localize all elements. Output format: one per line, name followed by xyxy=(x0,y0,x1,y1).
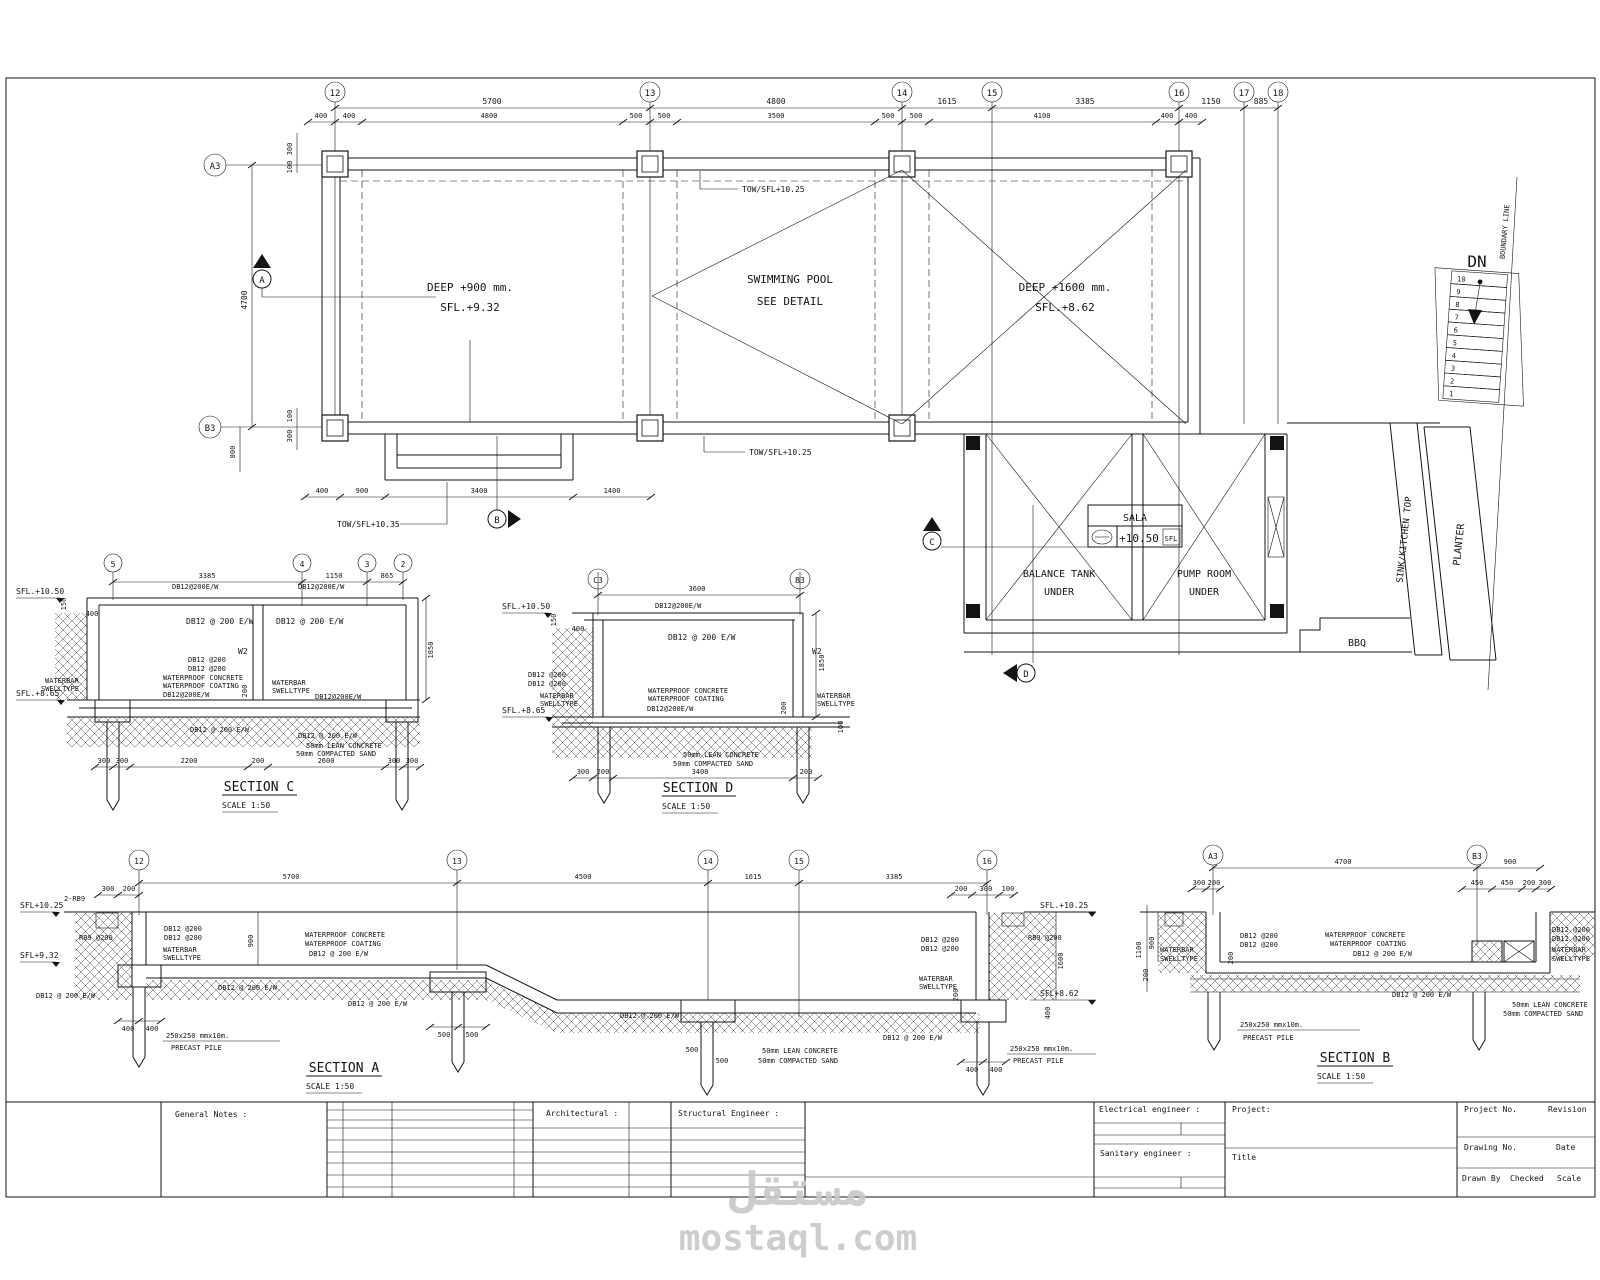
dim-label: 150 xyxy=(60,598,68,611)
dim-label: 4700 xyxy=(240,290,249,309)
marker-b: B xyxy=(494,516,499,526)
tb-project: Project: xyxy=(1232,1105,1271,1114)
material-label: WATERPROOF COATING xyxy=(305,940,381,948)
rebar-label: DB12 @ 200 E/W xyxy=(218,984,278,992)
seca-sfl-3: SFL.+10.25 xyxy=(1040,901,1088,910)
tb-revision: Revision xyxy=(1548,1105,1587,1114)
pool-title: SWIMMING POOL xyxy=(747,273,833,286)
dim-label: 3400 xyxy=(692,768,709,776)
secd-grid: C3 xyxy=(593,576,603,585)
dim-label: 200 xyxy=(952,989,960,1002)
dim-label: 900 xyxy=(356,487,369,495)
grid-bubble-17: 17 xyxy=(1239,89,1250,99)
plan-left-dims: 4700 300 100 100 300 800 xyxy=(229,133,297,472)
material-label: SWELLTYPE xyxy=(817,700,855,708)
rebar-label: DB12@200E/W xyxy=(647,705,694,713)
material-label: WATERBAR xyxy=(817,692,852,700)
dim-label: 1850 xyxy=(818,655,826,672)
secc-title: SECTION C xyxy=(224,780,294,795)
dim-label: 400 xyxy=(315,112,328,120)
section-a: 12 13 14 15 16 5700 4500 1615 3385 300 2… xyxy=(20,850,1096,1095)
material-label: WATERPROOF CONCRETE xyxy=(163,674,243,682)
dim-label: 2600 xyxy=(318,757,335,765)
sink-kitchen-label: SINK/KITCHEN TOP xyxy=(1396,496,1415,584)
seca-grid: 16 xyxy=(982,857,992,866)
tank-area: SALA +10.50 SFL BALANCE TANK UNDER PUMP … xyxy=(964,434,1412,652)
material-label: SWELLTYPE xyxy=(272,687,310,695)
dim-label: 200 xyxy=(1208,879,1221,887)
plan-dim-rows: 5700 4800 1615 3385 1150 885 400 400 480… xyxy=(304,97,1282,125)
dim-label: 200 xyxy=(597,768,610,776)
secd-title: SECTION D xyxy=(663,781,734,796)
material-label: WATERPROOF COATING xyxy=(163,682,239,690)
tb-date: Date xyxy=(1556,1143,1575,1152)
seca-grid: 14 xyxy=(703,857,713,866)
dim-label: 500 xyxy=(630,112,643,120)
pool-step-detail xyxy=(385,434,573,480)
grid-bubble-18: 18 xyxy=(1273,89,1284,99)
material-label: SWELLTYPE xyxy=(540,700,578,708)
dim-label: 5700 xyxy=(283,873,300,881)
rebar-label: DB12 @200 xyxy=(1552,926,1590,934)
plan-bottom-dims: 400 900 3400 1400 xyxy=(301,487,655,500)
dim-label: 200 xyxy=(1142,969,1150,982)
pile-label: PRECAST PILE xyxy=(171,1044,222,1052)
dim-label: 200 xyxy=(252,757,265,765)
pile-label: 250x250 mmx10m. xyxy=(1240,1021,1303,1029)
secb-scale: SCALE 1:50 xyxy=(1317,1072,1365,1081)
dim-label: 3500 xyxy=(768,112,785,120)
rebar-label: 2-RB9 xyxy=(64,895,85,903)
dim-label: 450 xyxy=(1501,879,1514,887)
pile-label: 250x250 mmx10m. xyxy=(1010,1045,1073,1053)
cad-canvas: 12 13 14 15 16 17 18 A3 B3 5700 4800 161… xyxy=(0,0,1600,1280)
dim-label: 900 xyxy=(1148,937,1156,950)
dim-label: 500 xyxy=(686,1046,699,1054)
dim-label: 400 xyxy=(343,112,356,120)
tb-drawn-by: Drawn By xyxy=(1462,1174,1501,1183)
stair-step: 8 xyxy=(1455,301,1460,309)
marker-d: D xyxy=(1023,670,1028,680)
rebar-label: DB12 @ 200 E/W xyxy=(186,617,254,626)
dim-label: 300 xyxy=(577,768,590,776)
stair-step: 3 xyxy=(1451,365,1456,373)
tb-drawing-no: Drawing No. xyxy=(1464,1143,1517,1152)
material-label: SWELLTYPE xyxy=(1160,955,1198,963)
rebar-label: DB12 @200 xyxy=(1240,941,1278,949)
dim-label: 4500 xyxy=(575,873,592,881)
dim-label: 4800 xyxy=(481,112,498,120)
sala-sfl: SFL xyxy=(1165,535,1178,543)
rebar-label: DB12 @ 200 E/W xyxy=(668,633,736,642)
material-label: WATERBAR xyxy=(1160,946,1195,954)
watermark: مستقل mostaql.com xyxy=(679,1162,917,1259)
dim-label: 1100 xyxy=(1135,942,1143,959)
plan-grid-bubbles: 12 13 14 15 16 17 18 A3 B3 xyxy=(199,82,1288,438)
material-label: SWELLTYPE xyxy=(1552,955,1590,963)
wall-label: W2 xyxy=(238,647,248,656)
tb-project-no: Project No. xyxy=(1464,1105,1517,1114)
dim-label: 3385 xyxy=(886,873,903,881)
grid-bubble-a3: A3 xyxy=(210,162,221,172)
dim-label: 100 xyxy=(837,721,845,734)
rebar-label: DB12 @200 xyxy=(921,945,959,953)
rebar-label: DB12 @ 200 E/W xyxy=(276,617,344,626)
material-label: 50mm LEAN CONCRETE xyxy=(762,1047,838,1055)
pool-sfl-1: SFL.+9.32 xyxy=(440,301,500,314)
seca-grid: 15 xyxy=(794,857,804,866)
material-label: WATERPROOF CONCRETE xyxy=(305,931,385,939)
boundary-line-label: BOUNDARY LINE xyxy=(1499,204,1512,259)
dim-label: 300 xyxy=(980,885,993,893)
rebar-label: DB12 @ 200 E/W xyxy=(348,1000,408,1008)
pool-see-detail: SEE DETAIL xyxy=(757,295,824,308)
dim-label: 400 xyxy=(990,1066,1003,1074)
rebar-label: DB12 @200 xyxy=(528,680,566,688)
seca-sfl-4: SFL+8.62 xyxy=(1040,989,1079,998)
secd-grid: B3 xyxy=(795,576,805,585)
tow-label-3: TOW/SFL+10.35 xyxy=(337,520,400,529)
material-label: 50mm COMPACTED SAND xyxy=(758,1057,838,1065)
dim-label: 500 xyxy=(882,112,895,120)
dim-label: 300 xyxy=(388,757,401,765)
planter-label: PLANTER xyxy=(1452,522,1467,566)
secd-sfl-top: SFL.+10.50 xyxy=(502,602,550,611)
rebar-label: DB12 @ 200 E/W xyxy=(309,950,369,958)
material-label: WATERBAR xyxy=(540,692,575,700)
stair-step: 2 xyxy=(1450,377,1455,385)
material-label: 50mm LEAN CONCRETE xyxy=(306,742,382,750)
section-c: 5 4 3 2 3385 1150 865 SFL.+10.50 SFL.+8.… xyxy=(16,554,435,812)
tb-sanitary: Sanitary engineer : xyxy=(1100,1149,1192,1158)
rebar-label: DB12 @200 xyxy=(1240,932,1278,940)
dim-label: 3385 xyxy=(199,572,216,580)
dim-label: 3600 xyxy=(689,585,706,593)
seca-sfl-1: SFL+10.25 xyxy=(20,901,64,910)
sala-label: SALA xyxy=(1123,513,1147,524)
material-label: WATERPROOF COATING xyxy=(648,695,724,703)
dim-label: 3400 xyxy=(471,487,488,495)
dim-label: 300 xyxy=(1539,879,1552,887)
dim-label: 900 xyxy=(1504,858,1517,866)
dim-label: 300 xyxy=(406,757,419,765)
secc-grid: 2 xyxy=(401,560,406,569)
watermark-arabic: مستقل xyxy=(729,1162,869,1216)
drawing-sheet: 12 13 14 15 16 17 18 A3 B3 5700 4800 161… xyxy=(0,0,1600,1280)
dim-label: 900 xyxy=(247,935,255,948)
secb-grid: B3 xyxy=(1472,852,1482,861)
rebar-label: DB12@200E/W xyxy=(655,602,702,610)
secb-grid: A3 xyxy=(1208,852,1218,861)
balance-tank-under: UNDER xyxy=(1044,587,1075,598)
rebar-label: DB12@200E/W xyxy=(163,691,210,699)
grid-bubble-14: 14 xyxy=(897,89,908,99)
dim-label: 2200 xyxy=(181,757,198,765)
material-label: WATERBAR xyxy=(1552,946,1587,954)
dim-label: 200 xyxy=(1227,952,1235,965)
dim-label: 100 xyxy=(1002,885,1015,893)
rebar-label: DB12 @ 200 E/W xyxy=(190,726,250,734)
tow-label-2: TOW/SFL+10.25 xyxy=(749,448,812,457)
rebar-label: DB12 @ 200 E/W xyxy=(1392,991,1452,999)
dim-label: 300 xyxy=(286,430,294,443)
dim-label: 5700 xyxy=(482,97,501,106)
tb-scale: Scale xyxy=(1557,1174,1581,1183)
section-b: A3 B3 4700 900 300 200 450 450 200 300 1… xyxy=(1135,845,1595,1083)
rebar-label: DB12 @200 xyxy=(528,671,566,679)
marker-a: A xyxy=(259,276,265,286)
stair-step: 9 xyxy=(1456,288,1461,296)
dim-label: 400 xyxy=(122,1025,135,1033)
rebar-label: RB9 @200 xyxy=(79,934,113,942)
dim-label: 150 xyxy=(550,614,558,627)
grid-bubble-15: 15 xyxy=(987,89,998,99)
material-label: 50mm LEAN CONCRETE xyxy=(683,751,759,759)
rebar-label: DB12@200E/W xyxy=(298,583,345,591)
material-label: SWELLTYPE xyxy=(41,685,79,693)
seca-scale: SCALE 1:50 xyxy=(306,1082,354,1091)
material-label: WATERPROOF CONCRETE xyxy=(648,687,728,695)
pool-depth-1: DEEP +900 mm. xyxy=(427,281,513,294)
secb-title: SECTION B xyxy=(1320,1051,1391,1066)
dim-label: 1600 xyxy=(1057,953,1065,970)
rebar-label: DB12 @200 xyxy=(921,936,959,944)
dim-label: 885 xyxy=(1254,97,1269,106)
rebar-label: RB9 @200 xyxy=(1028,934,1062,942)
dim-label: 300 xyxy=(98,757,111,765)
grid-bubble-16: 16 xyxy=(1174,89,1185,99)
secc-grid: 4 xyxy=(300,560,305,569)
pool-sfl-2: SFL.+8.62 xyxy=(1035,301,1095,314)
tow-label-1: TOW/SFL+10.25 xyxy=(742,185,805,194)
dim-label: 400 xyxy=(966,1066,979,1074)
seca-grid: 13 xyxy=(452,857,462,866)
tb-title: Title xyxy=(1232,1153,1256,1162)
pump-room-label: PUMP ROOM xyxy=(1177,569,1231,580)
rebar-label: DB12 @ 200 E/W xyxy=(1353,950,1413,958)
material-label: WATERPROOF COATING xyxy=(1330,940,1406,948)
dim-label: 1400 xyxy=(604,487,621,495)
dim-label: 1150 xyxy=(1201,97,1220,106)
dim-label: 450 xyxy=(1471,879,1484,887)
dim-label: 500 xyxy=(438,1031,451,1039)
sala-level: +10.50 xyxy=(1119,532,1159,545)
dn-label: DN xyxy=(1467,252,1486,271)
stair-step: 10 xyxy=(1457,275,1466,284)
dim-label: 300 xyxy=(116,757,129,765)
dim-label: 200 xyxy=(780,702,788,715)
dim-label: 1150 xyxy=(326,572,343,580)
stair-step: 6 xyxy=(1453,326,1458,334)
material-label: 50mm LEAN CONCRETE xyxy=(1512,1001,1588,1009)
rebar-label: DB12 @ 200 E/W xyxy=(883,1034,943,1042)
pile-label: PRECAST PILE xyxy=(1013,1057,1064,1065)
dim-label: 400 xyxy=(1185,112,1198,120)
dim-label: 200 xyxy=(241,685,249,698)
stairs: DN 10 9 8 7 6 5 4 3 2 1 xyxy=(1426,252,1533,406)
section-d: C3 B3 3600 SFL.+10.50 SFL.+8.65 150 400 … xyxy=(502,569,855,813)
material-label: WATERBAR xyxy=(163,946,198,954)
dim-label: 400 xyxy=(1044,1007,1052,1020)
secc-sfl-top: SFL.+10.50 xyxy=(16,587,64,596)
tb-architectural: Architectural : xyxy=(546,1109,618,1118)
dim-label: 500 xyxy=(910,112,923,120)
rebar-label: DB12 @ 200 E/W xyxy=(36,992,96,1000)
dim-label: 500 xyxy=(716,1057,729,1065)
dim-label: 400 xyxy=(146,1025,159,1033)
dim-label: 1615 xyxy=(937,97,956,106)
pile-label: PRECAST PILE xyxy=(1243,1034,1294,1042)
dim-label: 200 xyxy=(800,768,813,776)
tb-checked: Checked xyxy=(1510,1174,1544,1183)
marker-c: C xyxy=(929,538,934,548)
dim-label: 1850 xyxy=(427,642,435,659)
dim-label: 200 xyxy=(1523,879,1536,887)
watermark-domain: mostaql.com xyxy=(679,1218,917,1259)
bbq-label: BBQ xyxy=(1348,638,1366,649)
material-label: 50mm COMPACTED SAND xyxy=(673,760,753,768)
dim-label: 1615 xyxy=(745,873,762,881)
pump-room-under: UNDER xyxy=(1189,587,1220,598)
dim-label: 300 xyxy=(102,885,115,893)
stair-step: 1 xyxy=(1449,390,1454,398)
seca-grid: 12 xyxy=(134,857,144,866)
rebar-label: DB12 @200 xyxy=(164,934,202,942)
rebar-label: DB12 @ 200 E/W xyxy=(620,1012,680,1020)
dim-label: 500 xyxy=(466,1031,479,1039)
dim-label: 4800 xyxy=(766,97,785,106)
grid-bubble-13: 13 xyxy=(645,89,656,99)
dim-label: 200 xyxy=(955,885,968,893)
plan-grid-lines xyxy=(335,102,1278,655)
seca-sfl-2: SFL+9.32 xyxy=(20,951,59,960)
dim-label: 500 xyxy=(658,112,671,120)
material-label: WATERBAR xyxy=(45,677,80,685)
secd-sfl-bot: SFL.+8.65 xyxy=(502,706,546,715)
grid-bubble-b3: B3 xyxy=(205,424,216,434)
pile-label: 250x250 mmx10m. xyxy=(166,1032,229,1040)
dim-label: 100 xyxy=(286,161,294,174)
material-label: 50mm COMPACTED SAND xyxy=(1503,1010,1583,1018)
rebar-label: DB12 @ 200 E/W xyxy=(298,732,358,740)
tb-structural: Structural Engineer : xyxy=(678,1109,779,1118)
material-label: WATERPROOF CONCRETE xyxy=(1325,931,1405,939)
rebar-label: DB12@200E/W xyxy=(315,693,362,701)
dim-label: 400 xyxy=(1161,112,1174,120)
stair-step: 7 xyxy=(1454,314,1459,322)
dim-label: 100 xyxy=(286,410,294,423)
secc-scale: SCALE 1:50 xyxy=(222,801,270,810)
dim-label: 300 xyxy=(1193,879,1206,887)
material-label: 50mm COMPACTED SAND xyxy=(296,750,376,758)
stair-step: 5 xyxy=(1452,339,1457,347)
dim-label: 800 xyxy=(229,446,237,459)
seca-title: SECTION A xyxy=(309,1061,380,1076)
rebar-label: DB12 @200 xyxy=(1552,935,1590,943)
rebar-label: DB12@200E/W xyxy=(172,583,219,591)
secc-grid: 3 xyxy=(365,560,370,569)
plan-view: 12 13 14 15 16 17 18 A3 B3 5700 4800 161… xyxy=(199,82,1533,690)
dim-label: 300 xyxy=(286,143,294,156)
dim-label: 4700 xyxy=(1335,858,1352,866)
material-label: WATERBAR xyxy=(272,679,307,687)
material-label: WATERBAR xyxy=(919,975,954,983)
dim-label: 200 xyxy=(123,885,136,893)
stair-step: 4 xyxy=(1452,352,1457,360)
dim-label: 4100 xyxy=(1034,112,1051,120)
rebar-label: DB12 @200 xyxy=(188,665,226,673)
rebar-label: DB12 @200 xyxy=(188,656,226,664)
rebar-label: DB12 @200 xyxy=(164,925,202,933)
grid-bubble-12: 12 xyxy=(330,89,341,99)
tb-electrical: Electrical engineer : xyxy=(1099,1105,1200,1114)
material-label: SWELLTYPE xyxy=(163,954,201,962)
pool-labels: DEEP +900 mm. SFL.+9.32 SWIMMING POOL SE… xyxy=(337,171,1111,529)
dim-label: 400 xyxy=(316,487,329,495)
secd-scale: SCALE 1:50 xyxy=(662,802,710,811)
dim-label: 865 xyxy=(381,572,394,580)
tb-general-notes: General Notes : xyxy=(175,1110,247,1119)
dim-label: 3385 xyxy=(1075,97,1094,106)
dim-label: 400 xyxy=(86,610,99,618)
secc-grid: 5 xyxy=(111,560,116,569)
dim-label: 400 xyxy=(572,625,585,633)
pool-depth-2: DEEP +1600 mm. xyxy=(1019,281,1112,294)
balance-tank-label: BALANCE TANK xyxy=(1023,569,1095,580)
